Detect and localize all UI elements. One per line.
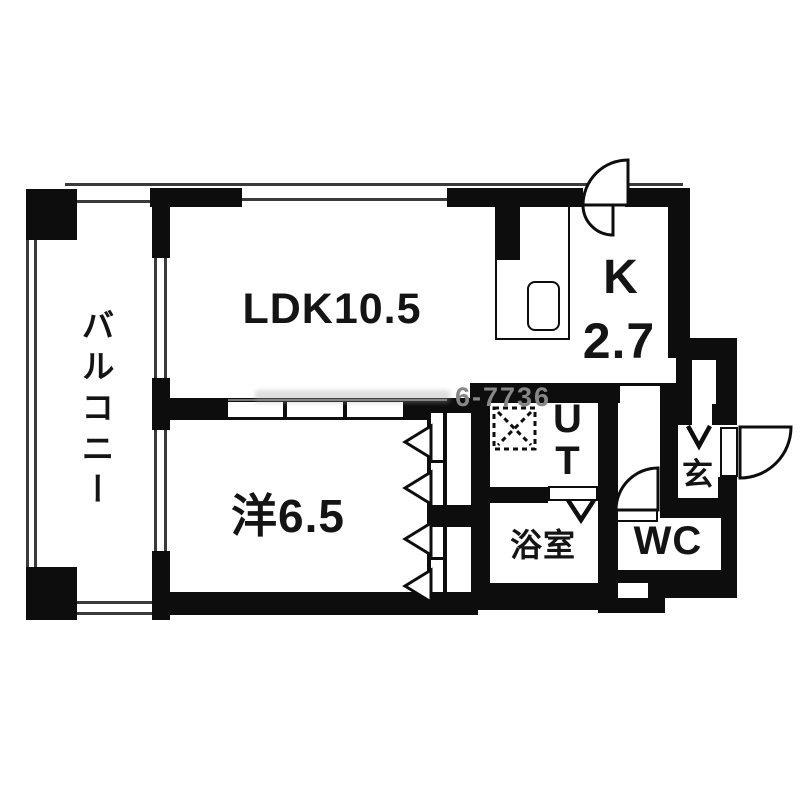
watermark-smudge: [255, 390, 450, 403]
closet-fold-triangle-3: [405, 523, 431, 555]
entrance-step-arrow: [688, 426, 710, 446]
utility-label-u: U: [544, 398, 592, 440]
utility-label-t: T: [544, 440, 592, 482]
kitchen-size-label: 2.7: [559, 314, 679, 368]
ldk-label: LDK10.5: [192, 286, 472, 332]
entrance-label: 玄: [678, 452, 718, 490]
closet-fold-triangle-1: [405, 426, 431, 458]
kitchen-door-arc-lower: [583, 205, 613, 235]
kitchen-letter-label: K: [581, 252, 661, 302]
kitchen-door-arc-upper: [583, 160, 628, 205]
western-room-label: 洋6.5: [188, 486, 388, 540]
toilet-label: WC: [618, 518, 718, 564]
corridor-door-arc: [616, 468, 658, 510]
closet-fold-triangle-2: [405, 472, 431, 504]
floor-plan: バルコニー LDK10.5 K 2.7 洋6.5 U T 浴室 WC 玄 6-7…: [0, 0, 800, 800]
balcony-label: バルコニー: [74, 272, 116, 548]
washing-machine-pan: [494, 408, 535, 449]
closet-fold-triangle-4: [405, 570, 431, 602]
entrance-door-arc: [740, 427, 791, 478]
bathroom-door-arrow: [568, 500, 594, 520]
watermark-text: 6-7736: [455, 382, 551, 413]
bathroom-label: 浴室: [483, 524, 603, 562]
